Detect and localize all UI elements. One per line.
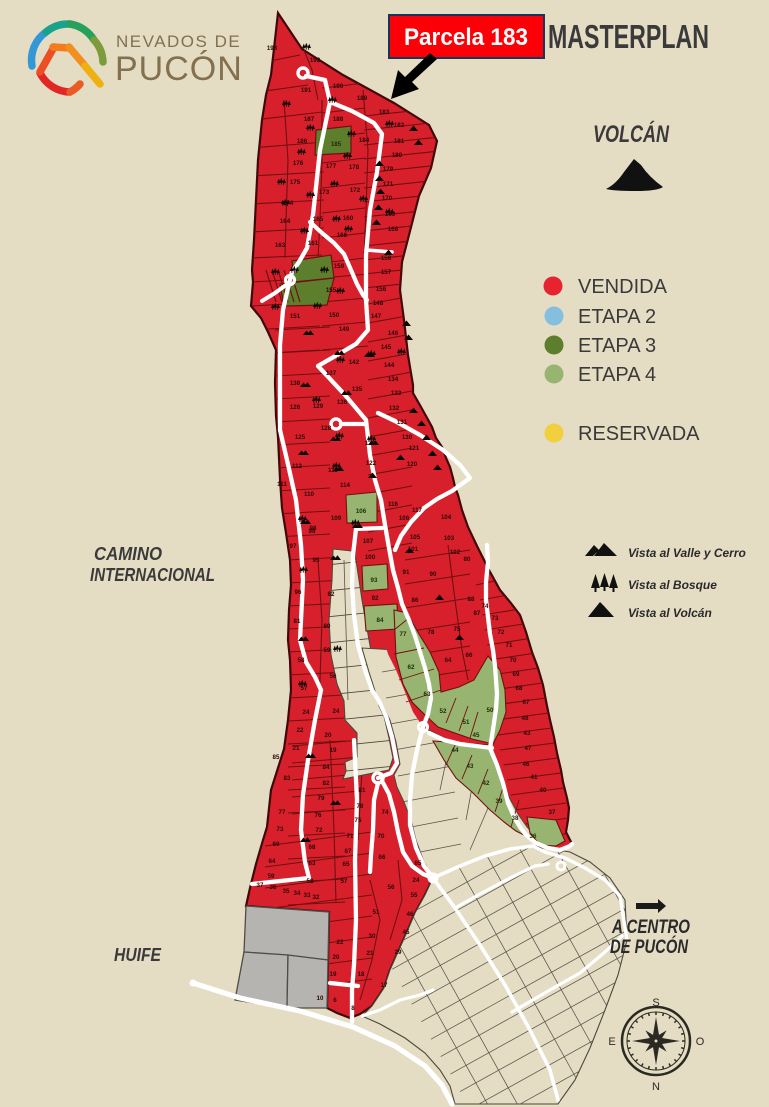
svg-text:88: 88 — [468, 596, 475, 603]
svg-text:106: 106 — [356, 508, 367, 515]
svg-text:98: 98 — [310, 525, 317, 532]
svg-text:105: 105 — [410, 534, 421, 541]
svg-text:48: 48 — [522, 715, 529, 722]
svg-text:78: 78 — [357, 803, 364, 810]
svg-text:19: 19 — [330, 747, 337, 754]
svg-text:97: 97 — [290, 543, 297, 550]
svg-text:46: 46 — [523, 761, 530, 768]
svg-text:S: S — [652, 997, 659, 1009]
svg-text:150: 150 — [329, 312, 340, 319]
svg-text:77: 77 — [400, 631, 407, 638]
svg-text:22: 22 — [297, 727, 304, 734]
svg-text:103: 103 — [444, 535, 455, 542]
svg-text:193: 193 — [267, 45, 278, 52]
svg-text:67: 67 — [345, 848, 352, 855]
svg-text:110: 110 — [304, 491, 315, 498]
svg-text:181: 181 — [394, 138, 405, 145]
svg-text:45: 45 — [403, 929, 410, 936]
svg-text:DE PUCÓN: DE PUCÓN — [610, 936, 689, 958]
svg-text:75: 75 — [454, 626, 461, 633]
svg-text:71: 71 — [347, 833, 354, 840]
svg-text:63: 63 — [309, 860, 316, 867]
svg-text:126: 126 — [290, 404, 301, 411]
svg-text:172: 172 — [350, 187, 361, 194]
svg-text:129: 129 — [313, 403, 324, 410]
svg-text:96: 96 — [295, 589, 302, 596]
svg-text:179: 179 — [383, 166, 394, 173]
svg-text:37: 37 — [257, 882, 264, 889]
svg-text:175: 175 — [290, 179, 301, 186]
svg-text:74: 74 — [382, 809, 389, 816]
svg-text:8: 8 — [351, 1005, 355, 1012]
svg-text:35: 35 — [283, 888, 290, 895]
svg-text:66: 66 — [379, 854, 386, 861]
svg-text:66: 66 — [466, 652, 473, 659]
svg-text:116: 116 — [388, 501, 399, 508]
svg-text:69: 69 — [513, 671, 520, 678]
svg-text:29: 29 — [395, 949, 402, 956]
svg-text:Vista al Volcán: Vista al Volcán — [628, 606, 712, 620]
svg-text:46: 46 — [407, 911, 414, 918]
svg-text:125: 125 — [295, 434, 306, 441]
svg-text:20: 20 — [325, 732, 332, 739]
svg-text:30: 30 — [369, 933, 376, 940]
svg-text:20: 20 — [333, 954, 340, 961]
svg-text:106: 106 — [399, 515, 410, 522]
svg-text:184: 184 — [359, 137, 370, 144]
svg-text:182: 182 — [394, 122, 405, 129]
svg-text:171: 171 — [383, 181, 394, 188]
svg-text:76: 76 — [315, 812, 322, 819]
svg-text:111: 111 — [277, 481, 287, 488]
svg-text:38: 38 — [512, 815, 519, 822]
svg-text:21: 21 — [293, 745, 300, 752]
svg-text:168: 168 — [388, 226, 399, 233]
svg-text:24: 24 — [413, 877, 420, 884]
svg-text:56: 56 — [330, 673, 337, 680]
svg-text:165: 165 — [313, 216, 324, 223]
svg-text:130: 130 — [402, 434, 413, 441]
svg-text:190: 190 — [333, 83, 344, 90]
svg-text:65: 65 — [415, 860, 422, 867]
svg-text:149: 149 — [339, 326, 350, 333]
svg-text:MASTERPLAN: MASTERPLAN — [548, 18, 709, 55]
svg-text:39: 39 — [496, 798, 503, 805]
svg-text:72: 72 — [316, 827, 323, 834]
svg-text:156: 156 — [376, 286, 387, 293]
svg-text:138: 138 — [290, 380, 301, 387]
svg-text:O: O — [696, 1036, 705, 1048]
svg-text:42: 42 — [483, 780, 490, 787]
svg-text:77: 77 — [279, 809, 286, 816]
svg-text:22: 22 — [337, 939, 344, 946]
svg-text:142: 142 — [349, 359, 360, 366]
svg-text:163: 163 — [275, 242, 286, 249]
svg-text:73: 73 — [492, 615, 499, 622]
svg-text:33: 33 — [304, 892, 311, 899]
svg-text:36: 36 — [270, 884, 277, 891]
svg-text:E: E — [608, 1036, 615, 1048]
svg-text:ETAPA 2: ETAPA 2 — [578, 306, 656, 328]
svg-text:81: 81 — [359, 787, 366, 794]
svg-text:VOLCÁN: VOLCÁN — [593, 120, 669, 148]
svg-text:51: 51 — [463, 719, 470, 726]
svg-text:134: 134 — [388, 376, 399, 383]
svg-text:10: 10 — [317, 995, 324, 1002]
svg-text:81: 81 — [294, 618, 301, 625]
svg-text:158: 158 — [381, 255, 392, 262]
svg-text:72: 72 — [498, 629, 505, 636]
svg-text:128: 128 — [321, 425, 332, 432]
svg-text:93: 93 — [371, 577, 378, 584]
svg-text:PUCÓN: PUCÓN — [115, 50, 243, 88]
svg-text:75: 75 — [355, 817, 362, 824]
svg-text:A CENTRO: A CENTRO — [611, 917, 690, 938]
svg-text:159: 159 — [334, 263, 345, 270]
svg-text:58: 58 — [298, 657, 305, 664]
svg-text:86: 86 — [412, 597, 419, 604]
svg-text:148: 148 — [373, 300, 384, 307]
svg-text:79: 79 — [318, 795, 325, 802]
svg-text:37: 37 — [549, 809, 556, 816]
svg-text:24: 24 — [303, 709, 310, 716]
svg-text:50: 50 — [487, 707, 494, 714]
svg-text:21: 21 — [367, 950, 374, 957]
svg-text:68: 68 — [309, 844, 316, 851]
svg-text:ETAPA 4: ETAPA 4 — [578, 364, 656, 386]
svg-text:24: 24 — [333, 708, 340, 715]
svg-text:120: 120 — [407, 461, 418, 468]
svg-text:180: 180 — [392, 152, 403, 159]
svg-text:145: 145 — [381, 344, 392, 351]
svg-text:95: 95 — [313, 557, 320, 564]
svg-text:170: 170 — [382, 195, 393, 202]
svg-text:136: 136 — [337, 399, 348, 406]
svg-text:RESERVADA: RESERVADA — [578, 423, 700, 445]
svg-text:147: 147 — [371, 313, 382, 320]
svg-text:83: 83 — [284, 775, 291, 782]
svg-text:183: 183 — [379, 109, 390, 116]
svg-text:132: 132 — [389, 405, 400, 412]
svg-text:161: 161 — [308, 240, 319, 247]
svg-text:100: 100 — [365, 554, 376, 561]
svg-text:102: 102 — [450, 549, 461, 556]
svg-text:65: 65 — [343, 861, 350, 868]
svg-text:59: 59 — [268, 873, 275, 880]
svg-text:173: 173 — [319, 189, 330, 196]
svg-text:164: 164 — [280, 218, 291, 225]
svg-text:121: 121 — [409, 445, 420, 452]
svg-text:133: 133 — [391, 390, 402, 397]
svg-text:Parcela 183: Parcela 183 — [404, 24, 528, 51]
svg-text:137: 137 — [326, 370, 337, 377]
svg-text:45: 45 — [473, 732, 480, 739]
svg-text:73: 73 — [277, 826, 284, 833]
svg-text:191: 191 — [301, 87, 312, 94]
svg-text:18: 18 — [358, 971, 365, 978]
svg-text:84: 84 — [323, 764, 330, 771]
svg-text:43: 43 — [467, 763, 474, 770]
svg-text:166: 166 — [337, 232, 348, 239]
svg-text:Vista al Bosque: Vista al Bosque — [628, 578, 717, 592]
svg-text:177: 177 — [326, 163, 337, 170]
svg-text:144: 144 — [384, 362, 395, 369]
svg-text:55: 55 — [411, 892, 418, 899]
svg-text:70: 70 — [378, 833, 385, 840]
svg-text:64: 64 — [445, 657, 452, 664]
svg-text:189: 189 — [357, 95, 368, 102]
svg-text:91: 91 — [403, 569, 410, 576]
svg-text:178: 178 — [349, 164, 360, 171]
svg-text:122: 122 — [366, 460, 377, 467]
svg-text:56: 56 — [388, 884, 395, 891]
svg-text:117: 117 — [412, 507, 423, 514]
svg-text:51: 51 — [373, 909, 380, 916]
svg-text:146: 146 — [388, 330, 399, 337]
svg-text:19: 19 — [330, 971, 337, 978]
svg-text:47: 47 — [525, 745, 532, 752]
svg-text:59: 59 — [324, 647, 331, 654]
svg-text:131: 131 — [397, 419, 408, 426]
svg-text:43: 43 — [524, 730, 531, 737]
svg-text:185: 185 — [331, 141, 342, 148]
svg-text:ETAPA 3: ETAPA 3 — [578, 335, 656, 357]
svg-text:188: 188 — [333, 116, 344, 123]
svg-text:85: 85 — [273, 754, 280, 761]
svg-text:109: 109 — [331, 515, 342, 522]
svg-text:176: 176 — [293, 160, 304, 167]
svg-text:92: 92 — [372, 595, 379, 602]
svg-text:80: 80 — [324, 623, 331, 630]
svg-text:70: 70 — [510, 657, 517, 664]
svg-text:82: 82 — [328, 591, 335, 598]
svg-text:57: 57 — [341, 878, 348, 885]
svg-text:69: 69 — [273, 841, 280, 848]
svg-text:40: 40 — [540, 787, 547, 794]
svg-text:155: 155 — [326, 287, 337, 294]
svg-text:32: 32 — [313, 894, 320, 901]
svg-text:34: 34 — [294, 890, 301, 897]
svg-text:186: 186 — [297, 138, 308, 145]
svg-text:135: 135 — [352, 386, 363, 393]
svg-text:187: 187 — [304, 116, 315, 123]
svg-text:74: 74 — [482, 603, 489, 610]
svg-text:62: 62 — [408, 664, 415, 671]
svg-text:87: 87 — [474, 610, 481, 617]
svg-text:HUIFE: HUIFE — [114, 945, 162, 965]
svg-text:67: 67 — [523, 699, 530, 706]
svg-text:160: 160 — [343, 215, 354, 222]
svg-text:6: 6 — [333, 997, 337, 1004]
svg-text:N: N — [652, 1081, 660, 1093]
svg-text:VENDIDA: VENDIDA — [578, 276, 668, 298]
svg-text:NEVADOS DE: NEVADOS DE — [116, 32, 241, 51]
svg-text:112: 112 — [292, 463, 303, 470]
svg-text:192: 192 — [310, 57, 321, 64]
svg-text:Vista al Valle y Cerro: Vista al Valle y Cerro — [628, 546, 746, 560]
svg-text:114: 114 — [340, 482, 351, 489]
svg-text:INTERNACIONAL: INTERNACIONAL — [90, 565, 215, 585]
svg-text:68: 68 — [516, 685, 523, 692]
svg-text:82: 82 — [323, 780, 330, 787]
svg-text:63: 63 — [424, 691, 431, 698]
svg-text:58: 58 — [307, 878, 314, 885]
svg-text:84: 84 — [377, 617, 384, 624]
svg-text:36: 36 — [530, 833, 537, 840]
svg-text:80: 80 — [464, 556, 471, 563]
svg-text:64: 64 — [269, 858, 276, 865]
svg-text:90: 90 — [430, 571, 437, 578]
svg-text:107: 107 — [363, 538, 374, 545]
svg-text:44: 44 — [452, 747, 459, 754]
svg-text:17: 17 — [381, 982, 388, 989]
svg-text:CAMINO: CAMINO — [94, 544, 162, 564]
svg-text:151: 151 — [290, 313, 301, 320]
svg-text:71: 71 — [506, 642, 513, 649]
svg-text:41: 41 — [531, 774, 538, 781]
svg-text:104: 104 — [441, 514, 452, 521]
svg-text:157: 157 — [381, 269, 392, 276]
svg-text:78: 78 — [428, 629, 435, 636]
svg-text:52: 52 — [440, 708, 447, 715]
